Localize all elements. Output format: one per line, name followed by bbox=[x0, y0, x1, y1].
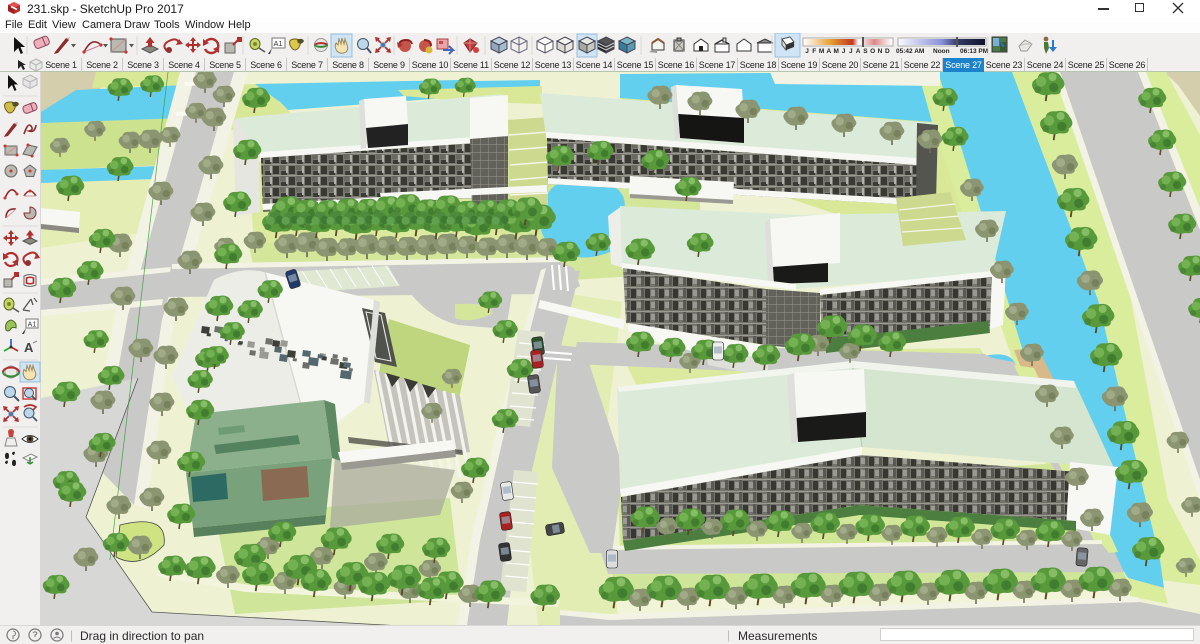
svg-text:A: A bbox=[24, 340, 34, 355]
svg-text:Noon: Noon bbox=[933, 48, 950, 55]
svg-text:J: J bbox=[842, 48, 846, 55]
svg-text:A: A bbox=[827, 48, 832, 55]
svg-text:F: F bbox=[812, 48, 816, 55]
svg-text:J: J bbox=[849, 48, 853, 55]
svg-text:A1: A1 bbox=[28, 322, 37, 329]
svg-text:M: M bbox=[819, 48, 824, 55]
svg-text:06:13 PM: 06:13 PM bbox=[960, 48, 988, 55]
svg-text:N: N bbox=[878, 48, 883, 55]
svg-text:A1: A1 bbox=[274, 39, 283, 48]
svg-text:D: D bbox=[885, 48, 890, 55]
svg-text:O: O bbox=[870, 48, 875, 55]
svg-text:05:42 AM: 05:42 AM bbox=[896, 48, 924, 55]
svg-text:S: S bbox=[863, 48, 868, 55]
svg-text:M: M bbox=[833, 48, 838, 55]
svg-text:J: J bbox=[805, 48, 809, 55]
svg-text:A: A bbox=[856, 48, 861, 55]
